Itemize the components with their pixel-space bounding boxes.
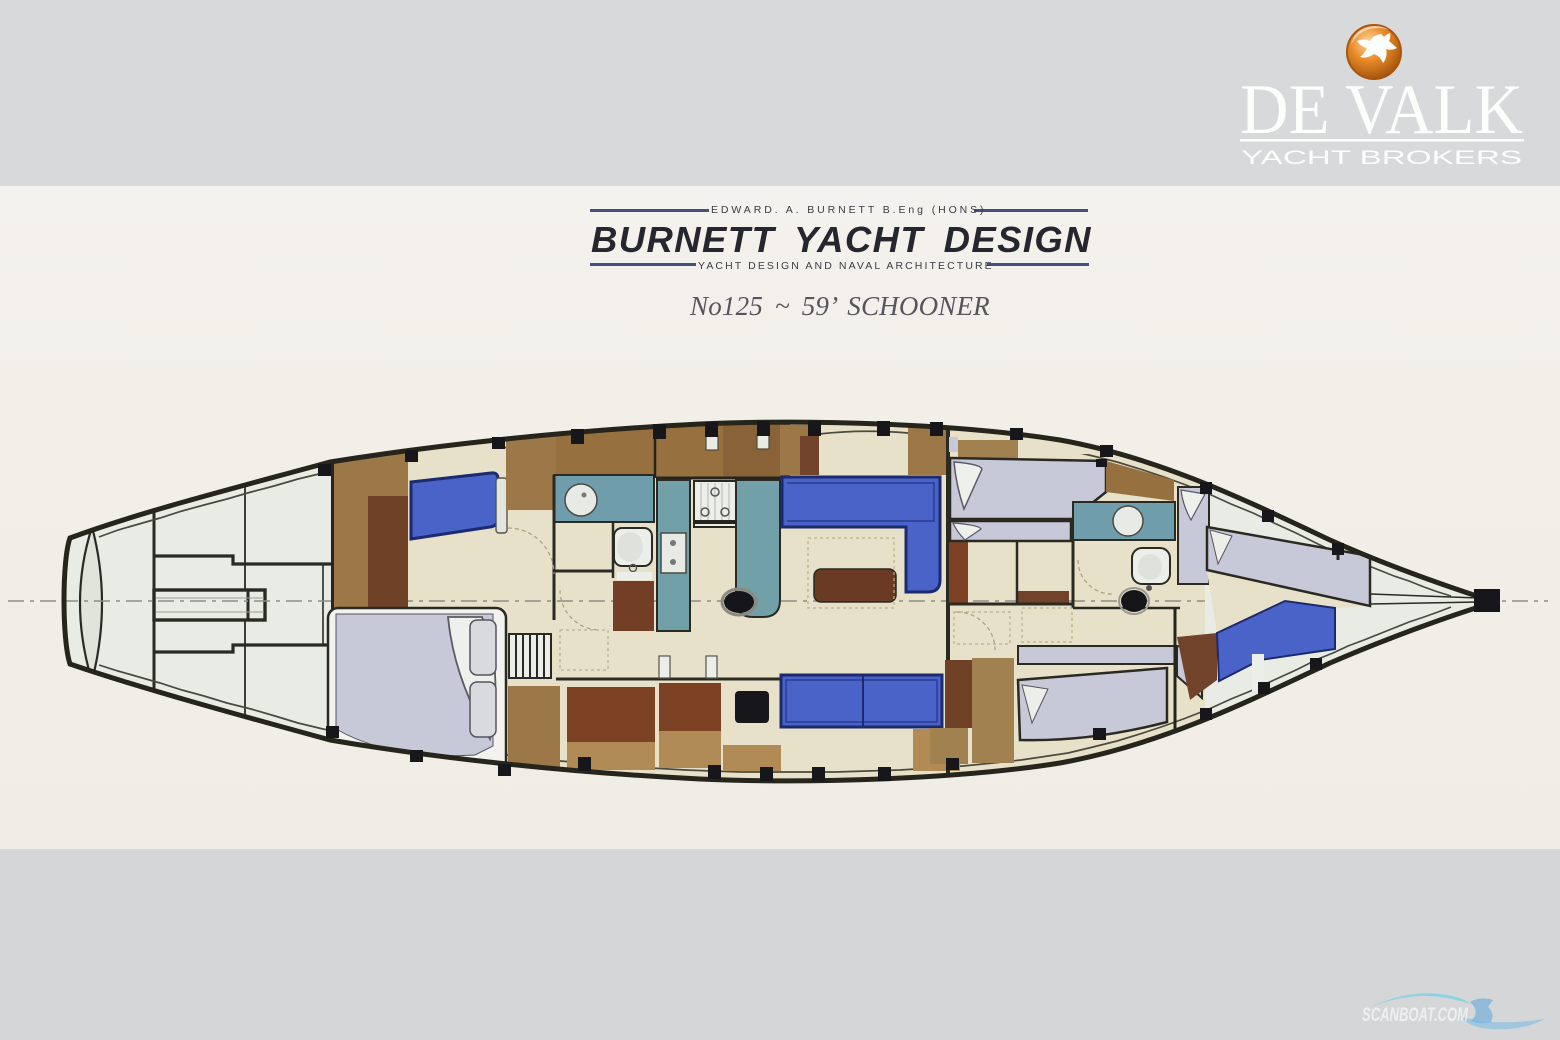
svg-text:SCANBOAT.COM: SCANBOAT.COM xyxy=(1362,1005,1469,1026)
svg-text:DE VALK: DE VALK xyxy=(1240,71,1523,149)
svg-text:YACHT BROKERS: YACHT BROKERS xyxy=(1241,148,1522,169)
